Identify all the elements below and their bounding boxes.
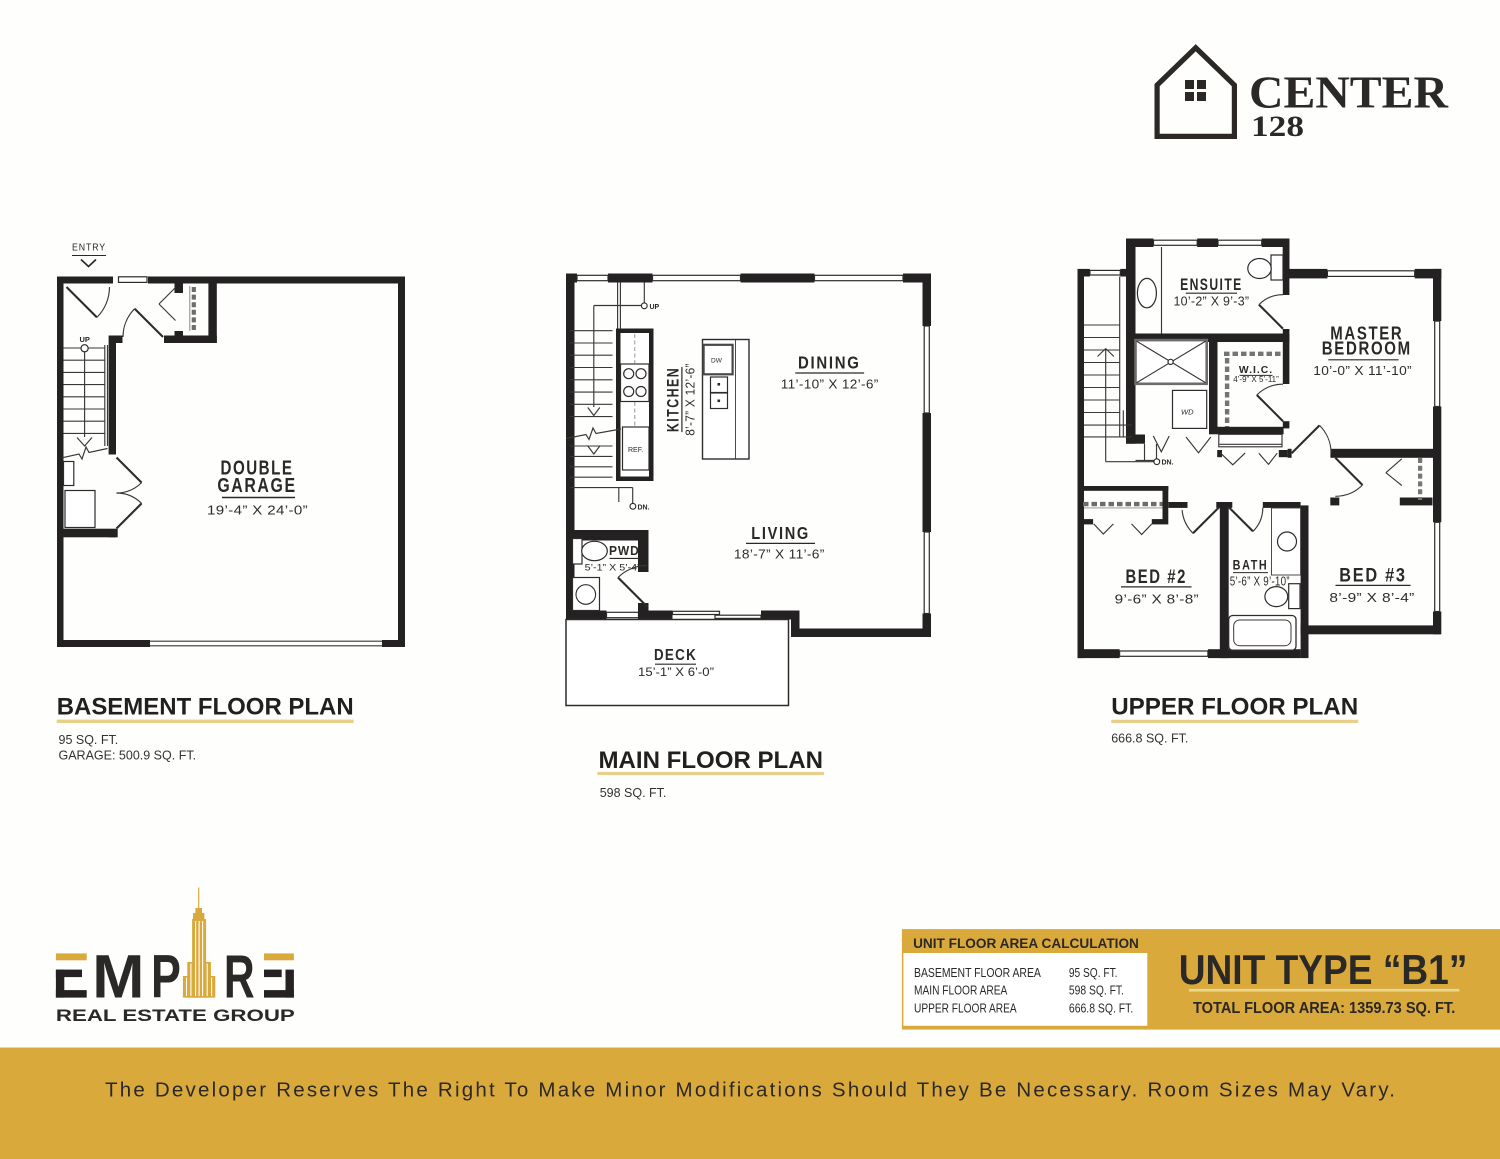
svg-text:DECK: DECK xyxy=(654,647,697,664)
svg-text:ENTRY: ENTRY xyxy=(72,243,106,254)
svg-text:MAIN FLOOR PLAN: MAIN FLOOR PLAN xyxy=(599,747,824,774)
svg-text:5’-6” X 9’-10”: 5’-6” X 9’-10” xyxy=(1230,573,1290,588)
svg-text:598 SQ. FT.: 598 SQ. FT. xyxy=(1069,984,1124,998)
svg-text:ENSUITE: ENSUITE xyxy=(1180,275,1243,294)
svg-text:11’-10” X 12’-6”: 11’-10” X 12’-6” xyxy=(781,377,879,392)
svg-text:M: M xyxy=(92,943,144,1011)
svg-text:15’-1” X 6’-0”: 15’-1” X 6’-0” xyxy=(638,667,714,679)
svg-text:BEDROOM: BEDROOM xyxy=(1322,338,1412,358)
svg-text:19’-4” X 24’-0”: 19’-4” X 24’-0” xyxy=(207,502,308,517)
svg-text:UNIT TYPE “B1”: UNIT TYPE “B1” xyxy=(1179,946,1468,993)
svg-text:MAIN FLOOR AREA: MAIN FLOOR AREA xyxy=(914,984,1008,998)
svg-text:P: P xyxy=(151,943,181,1011)
svg-text:BATH: BATH xyxy=(1233,557,1269,572)
svg-text:UPPER FLOOR PLAN: UPPER FLOOR PLAN xyxy=(1111,694,1358,721)
svg-text:8’-9” X 8’-4”: 8’-9” X 8’-4” xyxy=(1329,590,1414,605)
svg-text:UPPER FLOOR AREA: UPPER FLOOR AREA xyxy=(914,1001,1017,1015)
svg-text:BASEMENT FLOOR PLAN: BASEMENT FLOOR PLAN xyxy=(57,694,354,721)
svg-text:4’-9” X 5’-11”: 4’-9” X 5’-11” xyxy=(1233,375,1279,384)
svg-text:UP: UP xyxy=(80,335,90,344)
svg-text:PWD: PWD xyxy=(609,543,640,558)
svg-text:BED #2: BED #2 xyxy=(1125,567,1187,588)
svg-text:18’-7” X 11’-6”: 18’-7” X 11’-6” xyxy=(734,547,825,562)
svg-text:R: R xyxy=(224,943,255,1011)
svg-text:DINING: DINING xyxy=(798,352,861,372)
svg-text:BED #3: BED #3 xyxy=(1339,566,1406,587)
svg-text:10’-2” X 9’-3”: 10’-2” X 9’-3” xyxy=(1173,294,1249,309)
svg-text:128: 128 xyxy=(1251,110,1304,143)
svg-text:DW: DW xyxy=(711,358,723,365)
svg-text:9’-6” X 8’-8”: 9’-6” X 8’-8” xyxy=(1115,592,1199,607)
svg-text:95 SQ. FT.: 95 SQ. FT. xyxy=(1069,966,1118,980)
svg-text:GARAGE: 500.9 SQ. FT.: GARAGE: 500.9 SQ. FT. xyxy=(59,749,197,763)
svg-text:8’-7” X 12’-6”: 8’-7” X 12’-6” xyxy=(683,363,698,436)
svg-text:95 SQ. FT.: 95 SQ. FT. xyxy=(59,733,119,747)
svg-text:GARAGE: GARAGE xyxy=(217,475,296,497)
svg-text:DN.: DN. xyxy=(1162,460,1174,467)
svg-text:TOTAL FLOOR AREA: 1359.73 SQ.: TOTAL FLOOR AREA: 1359.73 SQ. FT. xyxy=(1193,1000,1455,1017)
svg-text:BASEMENT FLOOR AREA: BASEMENT FLOOR AREA xyxy=(914,966,1041,980)
svg-text:KITCHEN: KITCHEN xyxy=(664,367,683,432)
svg-text:REF.: REF. xyxy=(628,447,643,454)
svg-text:666.8 SQ. FT.: 666.8 SQ. FT. xyxy=(1111,732,1188,746)
svg-text:WD: WD xyxy=(1181,408,1194,417)
svg-text:10’-0” X 11’-10”: 10’-0” X 11’-10” xyxy=(1313,363,1412,378)
svg-text:LIVING: LIVING xyxy=(751,523,810,543)
svg-text:DN.: DN. xyxy=(638,504,650,511)
svg-text:The Developer Reserves The Rig: The Developer Reserves The Right To Make… xyxy=(105,1079,1395,1102)
svg-text:598 SQ. FT.: 598 SQ. FT. xyxy=(600,786,667,800)
svg-text:REAL ESTATE GROUP: REAL ESTATE GROUP xyxy=(56,1007,295,1025)
svg-text:UP: UP xyxy=(650,304,660,311)
svg-text:5’-1” X 5’-4”: 5’-1” X 5’-4” xyxy=(585,562,641,573)
svg-text:UNIT FLOOR AREA CALCULATION: UNIT FLOOR AREA CALCULATION xyxy=(913,936,1139,951)
svg-text:666.8 SQ. FT.: 666.8 SQ. FT. xyxy=(1069,1001,1133,1015)
